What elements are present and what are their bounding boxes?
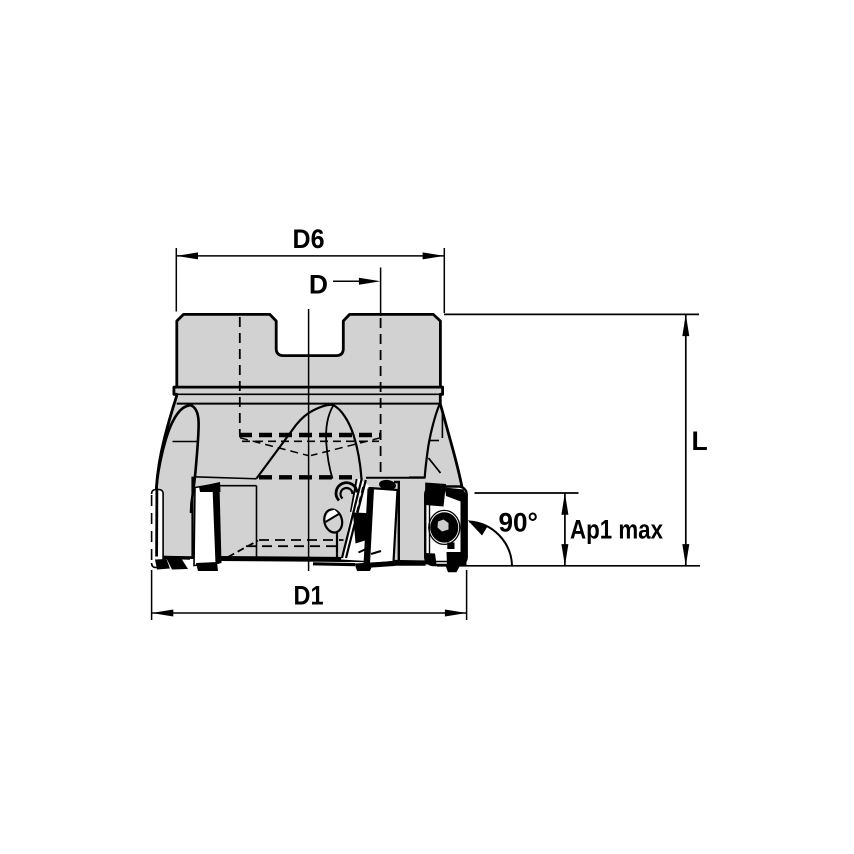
svg-text:D: D — [309, 269, 328, 299]
svg-text:90°: 90° — [499, 508, 539, 538]
svg-text:L: L — [692, 426, 708, 456]
svg-text:D1: D1 — [294, 581, 324, 611]
svg-text:D6: D6 — [293, 224, 325, 254]
svg-text:Ap1 max: Ap1 max — [570, 515, 663, 545]
